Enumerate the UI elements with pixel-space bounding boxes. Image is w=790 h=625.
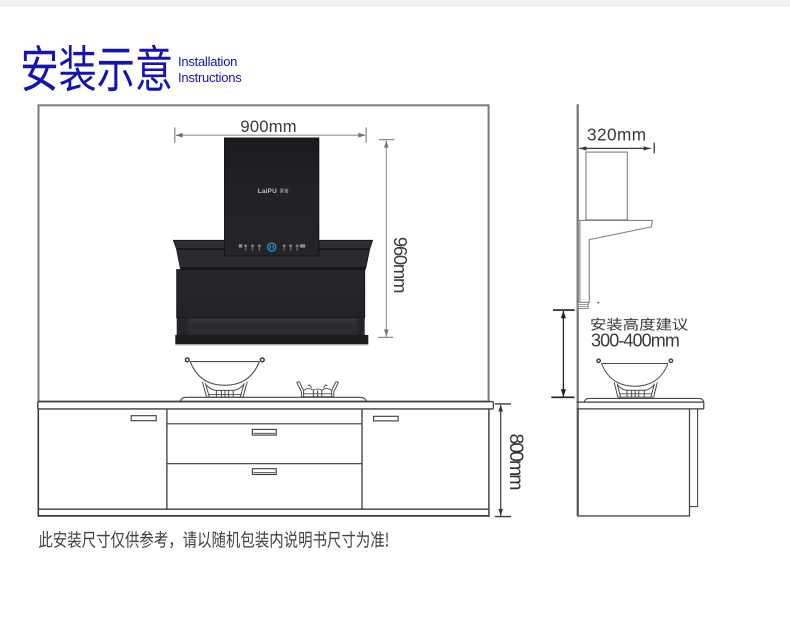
svg-text:300-400mm: 300-400mm [591, 330, 679, 350]
svg-text:LaiPU: LaiPU [258, 188, 277, 195]
svg-text:960mm: 960mm [390, 237, 411, 293]
svg-text:320mm: 320mm [587, 125, 647, 145]
svg-text:900mm: 900mm [240, 117, 296, 136]
svg-text:800mm: 800mm [505, 433, 527, 489]
